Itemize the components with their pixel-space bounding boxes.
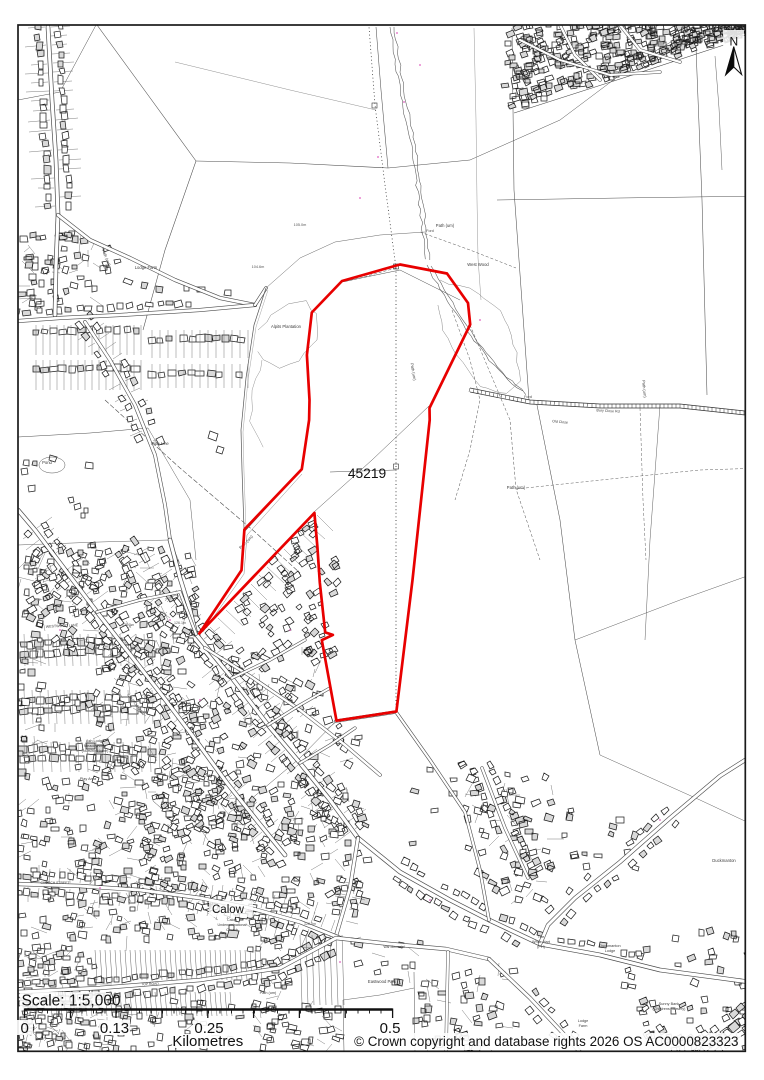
svg-text:Duckmanton: Duckmanton xyxy=(712,858,736,863)
svg-text:Undenominational: Undenominational xyxy=(218,923,247,927)
svg-text:Church: Church xyxy=(226,928,238,932)
svg-text:TOP ROAD: TOP ROAD xyxy=(141,982,159,987)
svg-text:Sunny Bank: Sunny Bank xyxy=(659,1002,680,1006)
svg-text:War Memorial: War Memorial xyxy=(384,945,405,949)
svg-text:126.5m: 126.5m xyxy=(304,922,316,926)
svg-text:(Childrens Nursery): (Childrens Nursery) xyxy=(653,1007,687,1011)
svg-text:Alpits Plantation: Alpits Plantation xyxy=(271,324,302,329)
svg-text:Duckmanton: Duckmanton xyxy=(599,944,620,948)
svg-text:Lodge Farm: Lodge Farm xyxy=(135,265,158,270)
svg-text:Path (um): Path (um) xyxy=(260,991,277,995)
svg-text:(PH): (PH) xyxy=(537,945,546,949)
svg-text:0.13: 0.13 xyxy=(100,1020,129,1037)
svg-text:Pond: Pond xyxy=(42,460,52,465)
svg-text:Meadowview: Meadowview xyxy=(84,744,106,748)
svg-text:104.6m: 104.6m xyxy=(252,265,265,269)
svg-text:White Hart: White Hart xyxy=(532,940,551,944)
svg-text:Ash Lodge: Ash Lodge xyxy=(86,739,104,743)
svg-text:(Nursing Home): (Nursing Home) xyxy=(82,749,110,753)
svg-text:Pipe Line: Pipe Line xyxy=(151,441,169,446)
svg-text:105.0m: 105.0m xyxy=(294,223,307,227)
svg-text:Path (um): Path (um) xyxy=(507,485,526,490)
svg-text:Eastwood Park: Eastwood Park xyxy=(368,979,397,984)
svg-text:Farm: Farm xyxy=(579,1024,588,1028)
svg-text:CHURCH STREET: CHURCH STREET xyxy=(40,881,69,885)
svg-text:125.5m: 125.5m xyxy=(122,623,134,627)
svg-text:Calow: Calow xyxy=(227,918,237,922)
svg-text:Scale: 1:5,000: Scale: 1:5,000 xyxy=(22,993,121,1010)
svg-text:West Wood: West Wood xyxy=(467,262,489,267)
svg-text:Lodge: Lodge xyxy=(578,1019,589,1023)
svg-text:Ford: Ford xyxy=(426,229,433,233)
svg-text:N: N xyxy=(729,35,738,49)
svg-text:Calow: Calow xyxy=(212,904,245,916)
svg-text:Lodge: Lodge xyxy=(605,949,616,953)
svg-text:Path (um): Path (um) xyxy=(436,223,455,228)
svg-text:Play Area: Play Area xyxy=(80,777,97,781)
svg-text:45219: 45219 xyxy=(348,466,387,481)
svg-text:The: The xyxy=(538,935,545,939)
svg-text:Ford: Ford xyxy=(524,395,532,399)
svg-text:126.1m: 126.1m xyxy=(174,621,186,625)
svg-text:© Crown copyright and database: © Crown copyright and database rights 20… xyxy=(354,1034,738,1049)
svg-text:0: 0 xyxy=(21,1020,29,1037)
svg-text:Kilometres: Kilometres xyxy=(172,1033,243,1050)
